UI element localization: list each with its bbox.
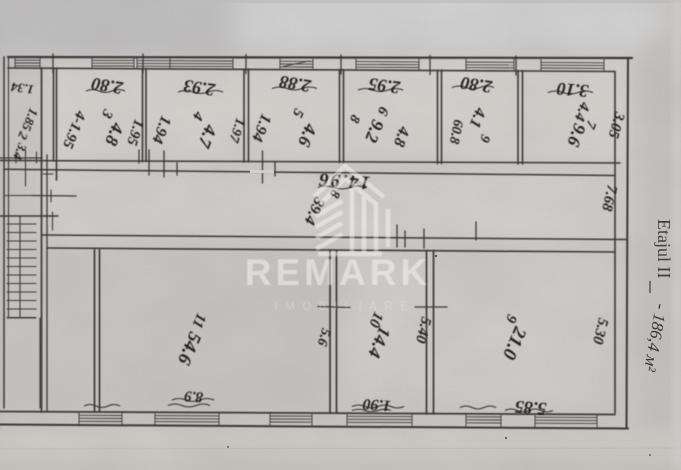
svg-text:5.85: 5.85 xyxy=(514,397,547,419)
svg-text:8.9: 8.9 xyxy=(183,387,203,404)
svg-text:1.90: 1.90 xyxy=(362,395,391,414)
svg-text:Etajul II: Etajul II xyxy=(654,219,674,278)
svg-text:3.10: 3.10 xyxy=(556,79,590,102)
svg-text:2.95: 2.95 xyxy=(367,74,402,98)
svg-text:IMOBILIARE: IMOBILIARE xyxy=(275,301,416,313)
svg-text:REMARK: REMARK xyxy=(245,252,431,293)
svg-text:1.34: 1.34 xyxy=(10,79,35,97)
